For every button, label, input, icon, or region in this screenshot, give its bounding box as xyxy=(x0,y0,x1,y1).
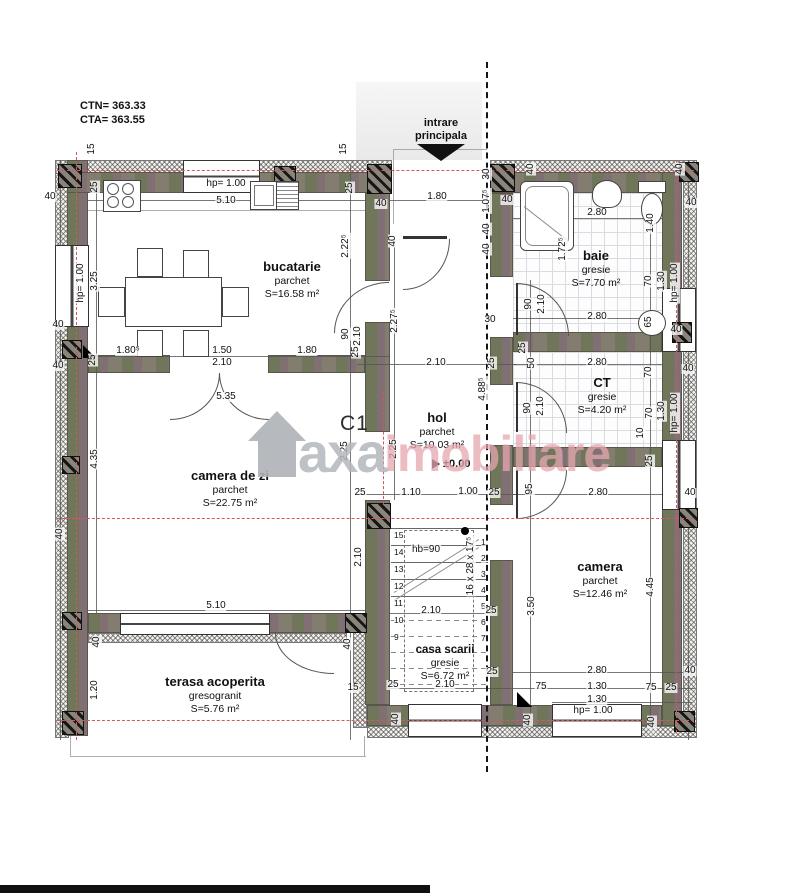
entrance-arrow-icon xyxy=(417,144,465,161)
burner-icon xyxy=(122,183,134,195)
dim-line xyxy=(552,702,692,703)
stair-number: 4 xyxy=(481,586,486,595)
baie-door-leaf xyxy=(516,283,518,335)
dimension-label: 25 xyxy=(88,353,98,366)
dimension-label: 25 xyxy=(345,181,355,194)
room-label-bucatarie: bucatarie parchet S=16.58 m² xyxy=(263,260,321,300)
room-label-terasa: terasa acoperita gresogranit S=5.76 m² xyxy=(165,675,265,715)
room-area: S=4.20 m² xyxy=(578,403,627,416)
chair xyxy=(183,330,209,357)
room-area: S=7.70 m² xyxy=(572,276,621,289)
dimension-label: 25 xyxy=(353,488,366,498)
stair-number: 10 xyxy=(394,616,403,625)
dimension-label: 40 xyxy=(669,325,682,335)
room-finish: parchet xyxy=(263,275,321,288)
stair-number: 2 xyxy=(481,554,486,563)
cta-value: CTA= 363.55 xyxy=(80,114,146,128)
axis-line xyxy=(57,170,694,171)
column xyxy=(367,503,391,529)
chair xyxy=(222,287,249,317)
dimension-label: 2.80 xyxy=(586,666,607,676)
section-label: C1 xyxy=(340,412,369,436)
room-finish: parchet xyxy=(191,484,269,497)
room-label-casa-scarii: casa scarii gresie S=6.72 m² xyxy=(416,644,475,682)
chair xyxy=(137,248,163,277)
dimension-label: 2.10 xyxy=(420,606,441,616)
dimension-label: 40 xyxy=(51,361,64,371)
dimension-label: 90 xyxy=(341,327,351,340)
dimension-label: 2.80 xyxy=(586,312,607,322)
dimension-label: 5.10 xyxy=(215,196,236,206)
column xyxy=(345,613,367,633)
axis-line xyxy=(383,392,384,504)
entrance-label: intrare principala xyxy=(415,117,467,143)
terrace-door-arc xyxy=(275,633,334,674)
dimension-label: 16 x 28 x 17⁵ xyxy=(466,536,476,597)
dimension-label: 40 xyxy=(681,364,694,374)
room-finish: parchet xyxy=(410,426,465,439)
dimension-label: 2.27⁵ xyxy=(390,308,400,334)
column xyxy=(58,164,82,188)
dimension-label: 30 xyxy=(483,315,496,325)
dimension-label: 2.22⁵ xyxy=(341,233,351,259)
terrace-edge xyxy=(70,736,71,756)
level-icon xyxy=(432,459,440,469)
dimension-label: 40 xyxy=(388,234,398,247)
dimension-label: 1.80 xyxy=(296,346,317,356)
dimension-label: 25 xyxy=(485,667,498,677)
dimension-label: 40 xyxy=(683,666,696,676)
stair-tread xyxy=(391,528,488,529)
dimension-label: 15 xyxy=(339,142,349,155)
dining-table xyxy=(125,277,222,327)
wall-kitchen-living-a xyxy=(88,355,170,373)
sink-drainer xyxy=(276,181,299,210)
elevation-note: CTN= 363.33 CTA= 363.55 xyxy=(80,100,146,128)
kitchen-sink xyxy=(250,181,278,210)
column xyxy=(367,164,392,194)
room-finish: gresie xyxy=(572,264,621,277)
room-name: terasa acoperita xyxy=(165,675,265,690)
axis-line xyxy=(57,518,694,519)
dimension-label: 2.10 xyxy=(354,546,364,567)
dimension-label: 40 xyxy=(675,162,685,175)
stair-number: 13 xyxy=(394,565,403,574)
terrace-edge xyxy=(364,736,365,756)
room-name: CT xyxy=(578,376,627,391)
stair-number: 15 xyxy=(394,531,403,540)
dimension-label: 4.88⁵ xyxy=(478,376,488,402)
dimension-label: 70 xyxy=(644,365,654,378)
dimension-label: 1.30 xyxy=(657,270,667,291)
sink-basin xyxy=(254,185,274,206)
room-name: casa scarii xyxy=(416,644,475,657)
dimension-label: 65 xyxy=(644,315,654,328)
stair-start-dot xyxy=(461,527,469,535)
dimension-label: 2.10 xyxy=(536,395,546,416)
wall-hol-baie xyxy=(490,193,513,277)
dimension-label: 25 xyxy=(645,454,655,467)
dimension-label: 40 xyxy=(684,198,697,208)
camera-door-leaf xyxy=(516,470,518,518)
dimension-label: 1.30 xyxy=(586,682,607,692)
dimension-label: 40 xyxy=(523,713,533,726)
dimension-label: 70 xyxy=(645,406,655,419)
dimension-label: 2.10 xyxy=(425,358,446,368)
ct-door-leaf xyxy=(516,382,518,432)
window-ct xyxy=(662,440,696,510)
stair-number: 14 xyxy=(394,548,403,557)
stair-number: 9 xyxy=(394,633,399,642)
dimension-label: 2.10 xyxy=(537,293,547,314)
dimension-label: 40 xyxy=(391,712,401,725)
dimension-label: 95 xyxy=(525,482,535,495)
dimension-label: 2.80 xyxy=(586,208,607,218)
room-label-ct: CT gresie S=4.20 m² xyxy=(578,376,627,416)
dimension-label: 25 xyxy=(518,341,528,354)
entrance-door-leaf xyxy=(403,236,447,239)
dimension-label: 25 xyxy=(90,180,100,193)
dimension-label: hb=90 xyxy=(411,545,441,555)
column xyxy=(62,711,84,735)
ctn-value: CTN= 363.33 xyxy=(80,100,146,114)
dimension-label: hp= 1.00 xyxy=(670,392,680,433)
dimension-label: 25 xyxy=(664,683,677,693)
dimension-label: 25 xyxy=(487,356,497,369)
entrance-door-arc xyxy=(403,239,450,290)
dimension-label: 50 xyxy=(527,356,537,369)
dimension-label: 1.00 xyxy=(457,487,478,497)
chair xyxy=(183,250,209,278)
stair-number: 12 xyxy=(394,582,403,591)
dimension-label: 4.45 xyxy=(646,576,656,597)
dimension-label: 2.80 xyxy=(586,358,607,368)
dimension-label: 1.10 xyxy=(400,488,421,498)
dimension-label: 75 xyxy=(644,683,657,693)
dimension-label: 40 xyxy=(526,162,536,175)
dimension-label: 30 xyxy=(482,167,492,180)
axis-line xyxy=(57,720,694,721)
dimension-label: 40 xyxy=(683,488,696,498)
dimension-label: 40 xyxy=(51,320,64,330)
room-label-camera: camera parchet S=12.46 m² xyxy=(573,560,628,600)
terrace-edge xyxy=(70,756,366,757)
column xyxy=(62,612,82,630)
dimension-label: 25 xyxy=(487,488,500,498)
room-finish: gresie xyxy=(416,657,475,670)
dimension-label: 40 xyxy=(374,199,387,209)
dimension-label: hp= 1.00 xyxy=(670,262,680,303)
room-name: bucatarie xyxy=(263,260,321,275)
dimension-label: 15 xyxy=(346,683,359,693)
dimension-label: 2.10 xyxy=(353,325,363,346)
entrance-label-line1: intrare xyxy=(415,117,467,130)
stair-number: 11 xyxy=(394,599,403,608)
room-area: S=16.58 m² xyxy=(263,287,321,300)
dimension-label: 90 xyxy=(524,297,534,310)
room-finish: gresie xyxy=(578,391,627,404)
dim-line xyxy=(394,240,395,500)
stair-number: 3 xyxy=(481,570,486,579)
stair-number: 7 xyxy=(481,634,486,643)
burner-icon xyxy=(107,183,119,195)
dimension-label: 1.80 xyxy=(426,192,447,202)
dimension-label: hp= 1.00 xyxy=(76,262,86,303)
room-area: S=5.76 m² xyxy=(165,702,265,715)
column xyxy=(62,456,80,474)
wall-stairs-camera xyxy=(490,560,513,705)
floor-plan: CTN= 363.33 CTA= 363.55 intrare principa… xyxy=(0,0,800,893)
dimension-label: 2.25 xyxy=(389,438,399,459)
dim-line xyxy=(88,356,390,357)
window-living xyxy=(120,613,270,635)
dimension-label: 40 xyxy=(343,637,353,650)
column xyxy=(62,340,82,359)
dimension-label: 40 xyxy=(482,222,492,235)
porch-outline xyxy=(393,150,394,224)
room-finish: gresogranit xyxy=(165,690,265,703)
dimension-label: 25 xyxy=(386,680,399,690)
dimension-label: 1.30 xyxy=(586,695,607,705)
stair-number: 6 xyxy=(481,618,486,627)
dimension-label: 3.50 xyxy=(527,595,537,616)
dimension-label: 1.07⁵ xyxy=(482,188,492,214)
stair-number: 1 xyxy=(481,538,486,547)
dimension-label: 1.72⁵ xyxy=(558,236,568,262)
wall-living-stairs xyxy=(365,500,390,705)
room-label-hol: hol parchet S=10.03 m² xyxy=(410,411,465,451)
dimension-label: 40 xyxy=(647,715,657,728)
dimension-label: 25 xyxy=(351,345,361,358)
room-area: S=22.75 m² xyxy=(191,496,269,509)
dimension-label: 75 xyxy=(534,682,547,692)
dimension-label: 10 xyxy=(636,426,646,439)
dimension-label: 1.40 xyxy=(646,212,656,233)
scan-bar xyxy=(0,885,430,893)
burner-icon xyxy=(122,196,134,208)
chair xyxy=(137,330,163,357)
dimension-label: 5.35 xyxy=(215,392,236,402)
axis-line xyxy=(676,160,677,733)
column xyxy=(674,711,695,732)
dimension-label: 1.50 xyxy=(211,346,232,356)
room-finish: parchet xyxy=(573,575,628,588)
room-area: S=10.03 m² xyxy=(410,438,465,451)
stove xyxy=(103,180,141,212)
dim-line xyxy=(96,193,97,613)
dimension-label: 40 xyxy=(92,635,102,648)
wall-junction-mark xyxy=(517,692,532,707)
level-mark: ±0.00 xyxy=(432,458,470,470)
room-label-baie: baie gresie S=7.70 m² xyxy=(572,249,621,289)
dimension-label: 40 xyxy=(500,195,513,205)
dimension-label: 1.30 xyxy=(657,400,667,421)
dimension-label: 2.80 xyxy=(587,488,608,498)
dimension-label: hp= 1.00 xyxy=(205,179,246,189)
room-name: camera xyxy=(573,560,628,575)
dimension-label: 3.25 xyxy=(90,270,100,291)
dimension-label: 40 xyxy=(55,527,65,540)
dimension-label: 5.10 xyxy=(205,601,226,611)
room-area: S=12.46 m² xyxy=(573,587,628,600)
dimension-label: 25 xyxy=(484,606,497,616)
room-name: camera de zi xyxy=(191,469,269,484)
dimension-label: 70 xyxy=(644,274,654,287)
entrance-label-line2: principala xyxy=(415,130,467,143)
column xyxy=(490,164,515,192)
axis-line xyxy=(76,152,77,740)
chair xyxy=(98,287,125,317)
room-name: baie xyxy=(572,249,621,264)
dimension-label: 15 xyxy=(87,142,97,155)
dimension-label: 90 xyxy=(523,401,533,414)
level-value: ±0.00 xyxy=(443,458,470,470)
wall-ct-camera xyxy=(513,447,662,467)
burner-icon xyxy=(107,196,119,208)
dimension-label: 1.80⁵ xyxy=(115,346,141,356)
baie-sink xyxy=(592,180,622,208)
room-name: hol xyxy=(410,411,465,426)
dimension-label: 40 xyxy=(43,192,56,202)
toilet-tank xyxy=(638,181,666,193)
dimension-label: 2.25 xyxy=(340,440,350,461)
room-area: S=6.72 m² xyxy=(416,670,475,683)
dimension-label: 4.35 xyxy=(90,448,100,469)
dimension-label: 1.20 xyxy=(90,679,100,700)
living-door-arc-left xyxy=(170,373,220,420)
dimension-label: 2.10 xyxy=(211,358,232,368)
room-label-camera-de-zi: camera de zi parchet S=22.75 m² xyxy=(191,469,269,509)
dimension-label: 40 xyxy=(482,242,492,255)
dimension-label: hp= 1.00 xyxy=(572,706,613,716)
